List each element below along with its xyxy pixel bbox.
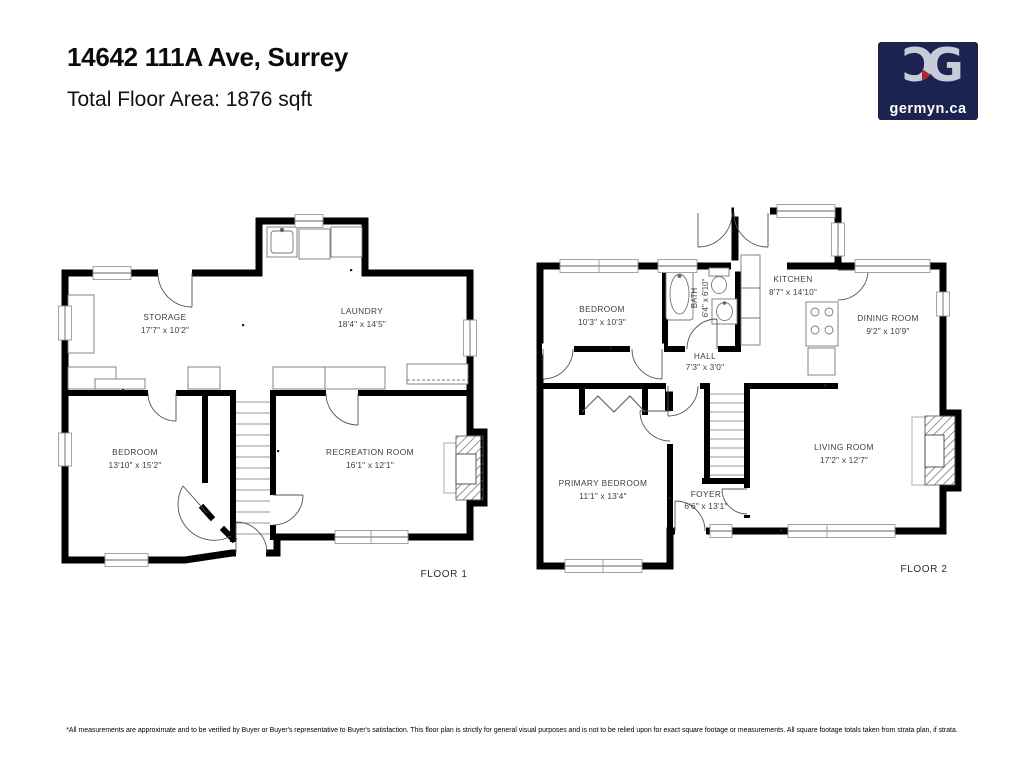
logo-monogram-icon: ƆG bbox=[878, 38, 978, 92]
logo-play-triangle-icon bbox=[922, 69, 931, 81]
bedroom2-label: BEDROOM bbox=[579, 304, 625, 314]
logo-domain-text: germyn.ca bbox=[878, 101, 978, 117]
recreation-label: RECREATION ROOM bbox=[326, 447, 414, 457]
hall-label: HALL bbox=[694, 351, 716, 361]
germyn-logo: ƆG germyn.ca bbox=[878, 42, 978, 120]
recreation-dims: 16'1" x 12'1" bbox=[346, 460, 394, 470]
floor1-marks bbox=[122, 269, 352, 452]
bedroom1-dims: 13'10" x 15'2" bbox=[109, 460, 162, 470]
stove-icon bbox=[806, 302, 838, 346]
bedroom1-label: BEDROOM bbox=[112, 447, 158, 457]
floor2-stairs bbox=[710, 394, 744, 475]
total-floor-area: Total Floor Area: 1876 sqft bbox=[67, 88, 312, 112]
storage-dims: 17'7" x 10'2" bbox=[141, 325, 189, 335]
laundry-dims: 18'4" x 14'5" bbox=[338, 319, 386, 329]
bath-dims: 6'4" x 6'10" bbox=[701, 279, 710, 318]
page-title: 14642 111A Ave, Surrey bbox=[67, 42, 348, 73]
floor1-stairs bbox=[236, 402, 270, 534]
living-label: LIVING ROOM bbox=[814, 442, 874, 452]
floor2-kitchen-fixtures bbox=[741, 255, 838, 375]
kitchen-label: KITCHEN bbox=[773, 274, 812, 284]
floor1-fireplace-icon bbox=[444, 436, 483, 500]
foyer-dims: 6'6" x 13'1" bbox=[684, 501, 727, 511]
living-dims: 17'2" x 12'7" bbox=[820, 455, 868, 465]
floor1-plan: STORAGE 17'7" x 10'2" LAUNDRY 18'4" x 14… bbox=[55, 203, 495, 588]
closet-bifold-doors bbox=[582, 396, 645, 412]
hall-dims: 7'3" x 3'0" bbox=[686, 362, 724, 372]
floor2-fireplace-icon bbox=[912, 416, 955, 485]
foyer-label: FOYER bbox=[691, 489, 722, 499]
toilet-icon bbox=[709, 268, 729, 276]
kitchen-dims: 8'7" x 14'10" bbox=[769, 287, 817, 297]
floor2-label: FLOOR 2 bbox=[901, 564, 948, 575]
dryer-icon bbox=[331, 227, 362, 257]
laundry-label: LAUNDRY bbox=[341, 306, 383, 316]
disclaimer-text: *All measurements are approximate and to… bbox=[0, 727, 1024, 734]
dining-label: DINING ROOM bbox=[857, 313, 919, 323]
floor1-fixtures bbox=[68, 227, 468, 389]
floor1-label: FLOOR 1 bbox=[421, 569, 468, 580]
floor2-plan: BEDROOM 10'3" x 10'3" BATH 6'4" x 6'10" … bbox=[525, 198, 975, 590]
primary-bedroom-label: PRIMARY BEDROOM bbox=[559, 478, 648, 488]
bath-label: BATH bbox=[690, 288, 699, 308]
primary-bedroom-dims: 11'1" x 13'4" bbox=[579, 491, 627, 501]
bedroom2-dims: 10'3" x 10'3" bbox=[578, 317, 626, 327]
washer-icon bbox=[299, 229, 330, 259]
dining-dims: 9'2" x 10'9" bbox=[866, 326, 909, 336]
storage-label: STORAGE bbox=[143, 312, 186, 322]
